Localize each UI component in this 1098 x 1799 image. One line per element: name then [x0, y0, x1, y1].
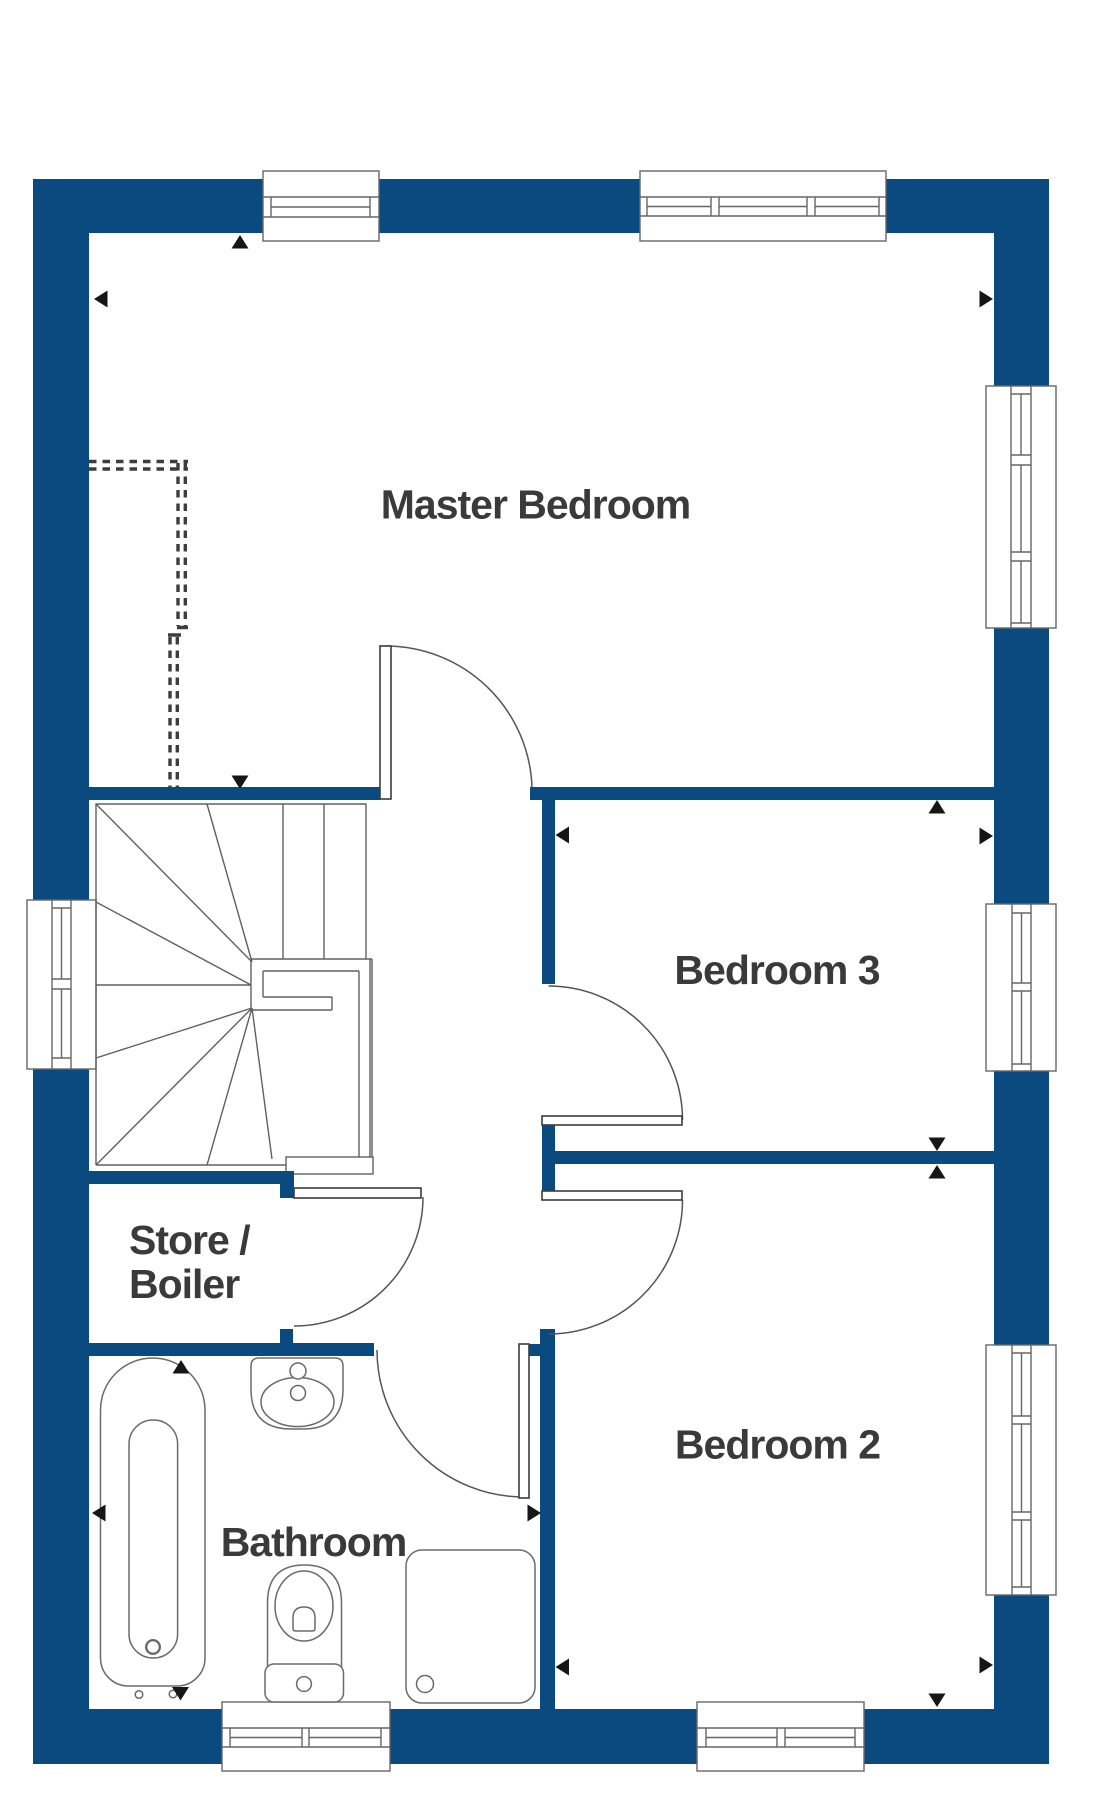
- svg-text:Master Bedroom: Master Bedroom: [381, 482, 691, 528]
- svg-text:Bathroom: Bathroom: [221, 1519, 407, 1565]
- svg-text:Store /: Store /: [129, 1217, 250, 1263]
- svg-text:Bedroom 2: Bedroom 2: [675, 1422, 880, 1468]
- svg-text:Bedroom 3: Bedroom 3: [674, 947, 879, 993]
- svg-text:Boiler: Boiler: [129, 1261, 240, 1307]
